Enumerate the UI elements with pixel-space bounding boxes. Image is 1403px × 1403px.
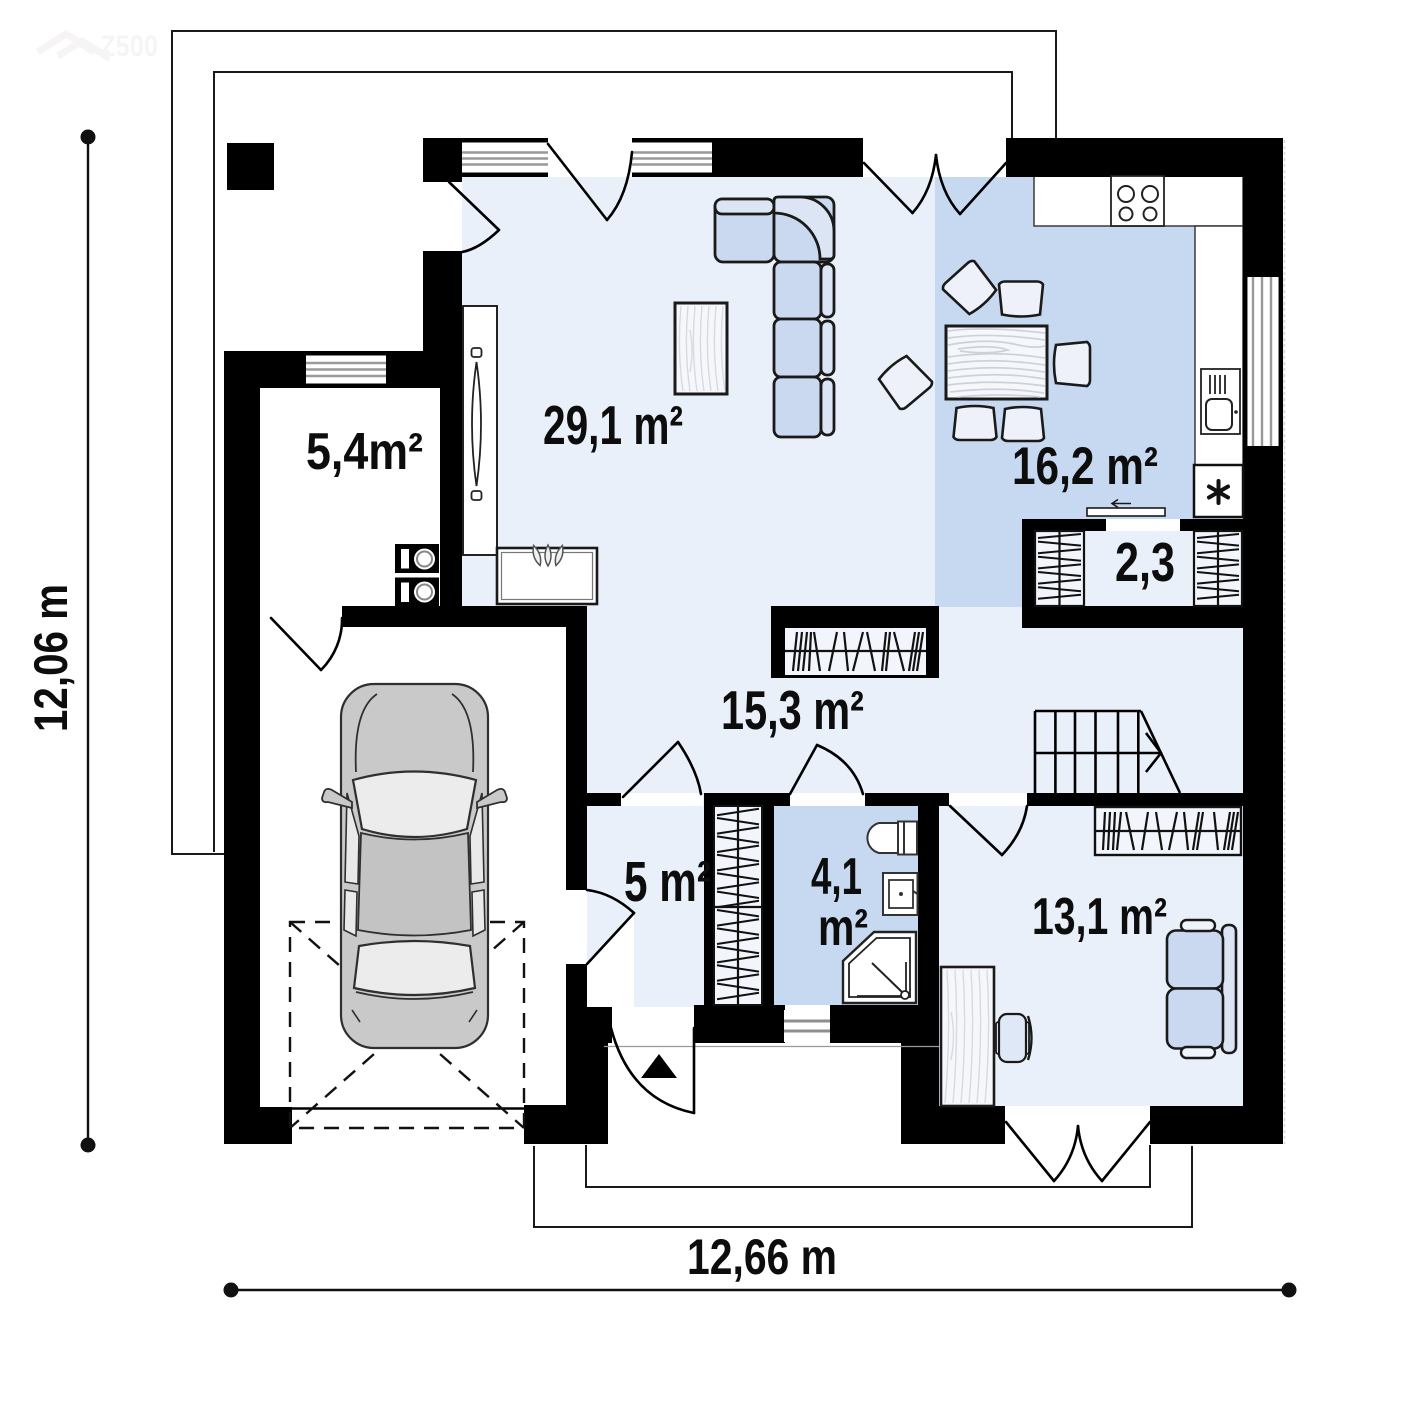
svg-text:13,1 m²: 13,1 m² xyxy=(1032,888,1167,946)
svg-text:5,4m²: 5,4m² xyxy=(306,423,423,481)
svg-text:Z500: Z500 xyxy=(100,30,158,63)
svg-text:5 m²: 5 m² xyxy=(624,850,711,914)
svg-text:2,3: 2,3 xyxy=(1115,531,1175,593)
svg-text:29,1 m²: 29,1 m² xyxy=(543,394,683,456)
svg-text:12,06 m: 12,06 m xyxy=(24,584,77,732)
svg-text:12,66 m: 12,66 m xyxy=(687,1229,837,1285)
svg-text:15,3 m²: 15,3 m² xyxy=(721,679,864,741)
svg-text:16,2 m²: 16,2 m² xyxy=(1012,437,1158,496)
svg-text:m²: m² xyxy=(818,899,868,957)
svg-text:4,1: 4,1 xyxy=(811,848,862,906)
